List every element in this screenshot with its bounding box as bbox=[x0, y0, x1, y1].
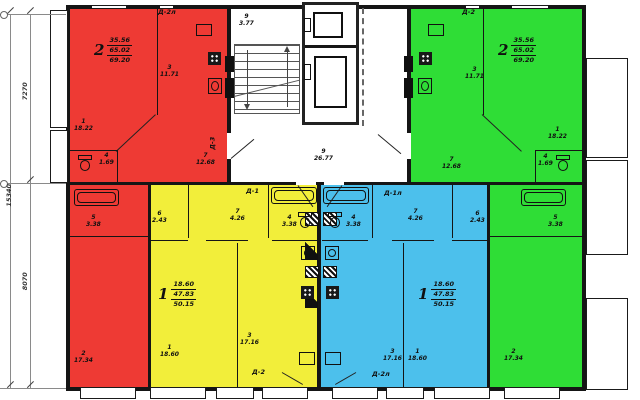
room-area: 3.38 bbox=[548, 221, 563, 228]
room-number: 3 bbox=[390, 348, 394, 355]
door-label: Д-2л bbox=[158, 9, 176, 16]
room-area: 11.71 bbox=[465, 73, 484, 80]
room-label: 2 17.34 bbox=[504, 348, 523, 362]
cabinet-icon bbox=[325, 352, 341, 365]
door-label: Д-2л bbox=[372, 371, 390, 378]
vent-shaft bbox=[404, 78, 413, 98]
room-number: 7 bbox=[203, 152, 207, 159]
door-label: Д-1 bbox=[246, 188, 259, 195]
bathtub-icon bbox=[323, 187, 369, 204]
room-area: 17.16 bbox=[383, 355, 402, 362]
partition bbox=[403, 243, 404, 390]
door-opening bbox=[296, 182, 316, 185]
door-label: Д-2 bbox=[252, 369, 265, 376]
balcony bbox=[50, 10, 68, 128]
room-number: 1 bbox=[415, 348, 419, 355]
room-label: 4 1.69 bbox=[538, 153, 553, 167]
partition bbox=[188, 185, 189, 238]
bathtub-icon bbox=[74, 189, 119, 206]
dimension-label: 8070 bbox=[22, 272, 29, 290]
room-area: 3.38 bbox=[86, 221, 101, 228]
area-total: 47.83 bbox=[431, 290, 456, 300]
room-area: 18.60 bbox=[408, 355, 427, 362]
area-living: 18.60 bbox=[431, 280, 456, 290]
cabinet-icon bbox=[299, 352, 315, 365]
window-bay bbox=[216, 387, 254, 399]
partition bbox=[268, 185, 269, 238]
room-label: 6 2.43 bbox=[470, 210, 485, 224]
apartment-label-green: 2 35.56 65.02 69.20 bbox=[498, 36, 536, 64]
dimension-label: 15340 bbox=[6, 184, 13, 207]
area-overall: 50.15 bbox=[171, 300, 196, 309]
apartment-label-red: 2 35.56 65.02 69.20 bbox=[94, 36, 132, 64]
cabinet-icon bbox=[196, 24, 212, 36]
room-number: 7 bbox=[235, 208, 239, 215]
room-label: 7 12.68 bbox=[196, 152, 215, 166]
room-area: 4.26 bbox=[230, 215, 245, 222]
balcony bbox=[50, 130, 68, 183]
room-number: 5 bbox=[91, 214, 95, 221]
room-area: 18.22 bbox=[74, 125, 93, 132]
vent-shaft bbox=[225, 78, 234, 98]
room-number: 9 bbox=[244, 13, 248, 20]
room-area: 1.69 bbox=[99, 159, 114, 166]
apartment-label-blue: 1 18.60 47.83 50.15 bbox=[418, 280, 456, 308]
elevator-car-small bbox=[313, 12, 343, 38]
window-bay bbox=[434, 387, 490, 399]
bathtub-icon bbox=[271, 187, 317, 204]
room-number: 7 bbox=[413, 208, 417, 215]
partition bbox=[70, 236, 150, 237]
balcony bbox=[586, 160, 628, 255]
toilet-icon bbox=[78, 155, 92, 172]
room-label: 5 3.38 bbox=[548, 214, 563, 228]
toilet-icon bbox=[298, 212, 312, 229]
door-label: Д-2 bbox=[462, 9, 475, 16]
apartment-type: 2 bbox=[94, 43, 104, 58]
room-number: 3 bbox=[472, 66, 476, 73]
area-total: 65.02 bbox=[107, 46, 132, 56]
sink-icon bbox=[301, 246, 315, 260]
room-number: 7 bbox=[449, 156, 453, 163]
partition bbox=[535, 150, 536, 183]
partition bbox=[157, 9, 158, 115]
room-label: 1 18.22 bbox=[548, 126, 567, 140]
room-area: 17.34 bbox=[504, 355, 523, 362]
partition bbox=[117, 150, 118, 183]
sink-icon bbox=[418, 78, 432, 94]
window-bay bbox=[80, 387, 136, 399]
room-label: 1 18.60 bbox=[408, 348, 427, 362]
room-area: 17.34 bbox=[74, 357, 93, 364]
balcony bbox=[586, 298, 628, 390]
room-area: 18.22 bbox=[548, 133, 567, 140]
apartment-label-yellow: 1 18.60 47.83 50.15 bbox=[158, 280, 196, 308]
room-number: 5 bbox=[553, 214, 557, 221]
room-number: 2 bbox=[511, 348, 515, 355]
stove-icon bbox=[301, 286, 314, 299]
room-number: 6 bbox=[475, 210, 479, 217]
stair-arrow-up bbox=[287, 52, 288, 107]
room-label-hall: 9 26.77 bbox=[314, 148, 333, 162]
stove-icon bbox=[208, 52, 221, 65]
room-area: 17.16 bbox=[240, 339, 259, 346]
toilet-icon bbox=[556, 155, 570, 172]
elevator-car-large bbox=[314, 56, 347, 108]
room-number: 3 bbox=[167, 64, 171, 71]
room-number: 6 bbox=[157, 210, 161, 217]
room-area: 3.38 bbox=[346, 221, 361, 228]
elevator-door bbox=[304, 18, 311, 32]
window-opening bbox=[512, 5, 548, 9]
room-area: 11.71 bbox=[160, 71, 179, 78]
room-label: 7 12.68 bbox=[442, 156, 461, 170]
area-overall: 69.20 bbox=[511, 56, 536, 65]
window-bay bbox=[150, 387, 206, 399]
room-number: 1 bbox=[167, 344, 171, 351]
partition bbox=[452, 240, 490, 241]
vent-shaft bbox=[323, 266, 337, 278]
apartment-type: 2 bbox=[498, 43, 508, 58]
area-living: 35.56 bbox=[107, 36, 132, 46]
partition bbox=[372, 185, 373, 238]
room-label: 2 17.34 bbox=[74, 350, 93, 364]
room-area: 18.60 bbox=[160, 351, 179, 358]
area-living: 35.56 bbox=[511, 36, 536, 46]
extension-line bbox=[0, 388, 66, 389]
partition bbox=[150, 240, 188, 241]
vent-shaft bbox=[225, 56, 234, 72]
door-swing bbox=[378, 134, 402, 154]
room-label: 3 17.16 bbox=[383, 348, 402, 362]
room-area: 2.43 bbox=[152, 217, 167, 224]
room-area: 2.43 bbox=[470, 217, 485, 224]
sink-icon bbox=[208, 78, 222, 94]
stair-arrow-up-head bbox=[284, 46, 290, 52]
partition bbox=[483, 9, 484, 115]
partition bbox=[322, 240, 368, 241]
room-number: 1 bbox=[555, 126, 559, 133]
partition bbox=[70, 150, 117, 151]
room-number: 1 bbox=[81, 118, 85, 125]
window-bay bbox=[262, 387, 308, 399]
partition bbox=[490, 236, 583, 237]
area-total: 47.83 bbox=[171, 290, 196, 300]
elevator-door bbox=[304, 64, 311, 80]
room-label: 4 3.38 bbox=[282, 214, 297, 228]
room-number: 4 bbox=[351, 214, 355, 221]
bathtub-icon bbox=[521, 189, 566, 206]
balcony bbox=[586, 58, 628, 158]
stove-icon bbox=[419, 52, 432, 65]
room-label: 3 11.71 bbox=[160, 64, 179, 78]
window-bay bbox=[504, 387, 560, 399]
room-number: 4 bbox=[104, 152, 108, 159]
apartment-type: 1 bbox=[418, 287, 428, 302]
door-opening bbox=[407, 133, 411, 159]
cabinet-icon bbox=[428, 24, 444, 36]
area-overall: 69.20 bbox=[107, 56, 132, 65]
room-label: 3 11.71 bbox=[465, 66, 484, 80]
room-area: 12.68 bbox=[196, 159, 215, 166]
door-label: Д-1л bbox=[384, 190, 402, 197]
window-bay bbox=[332, 387, 378, 399]
room-label: 7 4.26 bbox=[408, 208, 423, 222]
door-swing bbox=[231, 139, 255, 159]
room-label: 4 3.38 bbox=[346, 214, 361, 228]
stair-arrow-down bbox=[247, 50, 248, 105]
room-label: 1 18.60 bbox=[160, 344, 179, 358]
room-area: 3.77 bbox=[239, 20, 254, 27]
axis-bubble bbox=[0, 11, 8, 19]
vent-shaft bbox=[404, 56, 413, 72]
window-opening bbox=[92, 5, 126, 9]
vent-shaft bbox=[305, 266, 319, 278]
room-area: 3.38 bbox=[282, 221, 297, 228]
partition bbox=[536, 150, 583, 151]
room-number: 4 bbox=[287, 214, 291, 221]
room-area: 12.68 bbox=[442, 163, 461, 170]
dashed-boundary bbox=[362, 8, 364, 126]
room-label: 5 3.38 bbox=[86, 214, 101, 228]
dimension-label: 7270 bbox=[22, 82, 29, 100]
wall-blue-green bbox=[487, 182, 490, 391]
dimension-line-inner bbox=[30, 14, 31, 388]
toilet-icon bbox=[328, 212, 342, 229]
stove-icon bbox=[326, 286, 339, 299]
window-bay bbox=[386, 387, 424, 399]
room-number: 3 bbox=[247, 332, 251, 339]
room-label: 3 17.16 bbox=[240, 332, 259, 346]
room-label: 7 4.26 bbox=[230, 208, 245, 222]
room-area: 4.26 bbox=[408, 215, 423, 222]
area-total: 65.02 bbox=[511, 46, 536, 56]
apartment-type: 1 bbox=[158, 287, 168, 302]
room-area: 1.69 bbox=[538, 160, 553, 167]
partition bbox=[392, 240, 434, 241]
floor-plan: 7270 8070 15340 9 3.77 9 26.77 Д-3 Д-2л … bbox=[0, 0, 640, 400]
elevator-divider bbox=[305, 45, 356, 48]
door-opening bbox=[227, 133, 231, 159]
room-area: 26.77 bbox=[314, 155, 333, 162]
area-overall: 50.15 bbox=[431, 300, 456, 309]
door-mark-label: Д-3 bbox=[209, 137, 216, 150]
area-living: 18.60 bbox=[171, 280, 196, 290]
partition bbox=[206, 240, 248, 241]
room-label: 4 1.69 bbox=[99, 152, 114, 166]
room-number: 2 bbox=[81, 350, 85, 357]
room-label: 6 2.43 bbox=[152, 210, 167, 224]
sink-icon bbox=[325, 246, 339, 260]
stair-arrow-down-head bbox=[244, 104, 250, 110]
partition bbox=[452, 185, 453, 238]
room-label-stairs: 9 3.77 bbox=[239, 13, 254, 27]
wall-red-yellow bbox=[148, 182, 151, 391]
room-number: 9 bbox=[321, 148, 325, 155]
room-number: 4 bbox=[543, 153, 547, 160]
partition bbox=[237, 243, 238, 390]
room-label: 1 18.22 bbox=[74, 118, 93, 132]
